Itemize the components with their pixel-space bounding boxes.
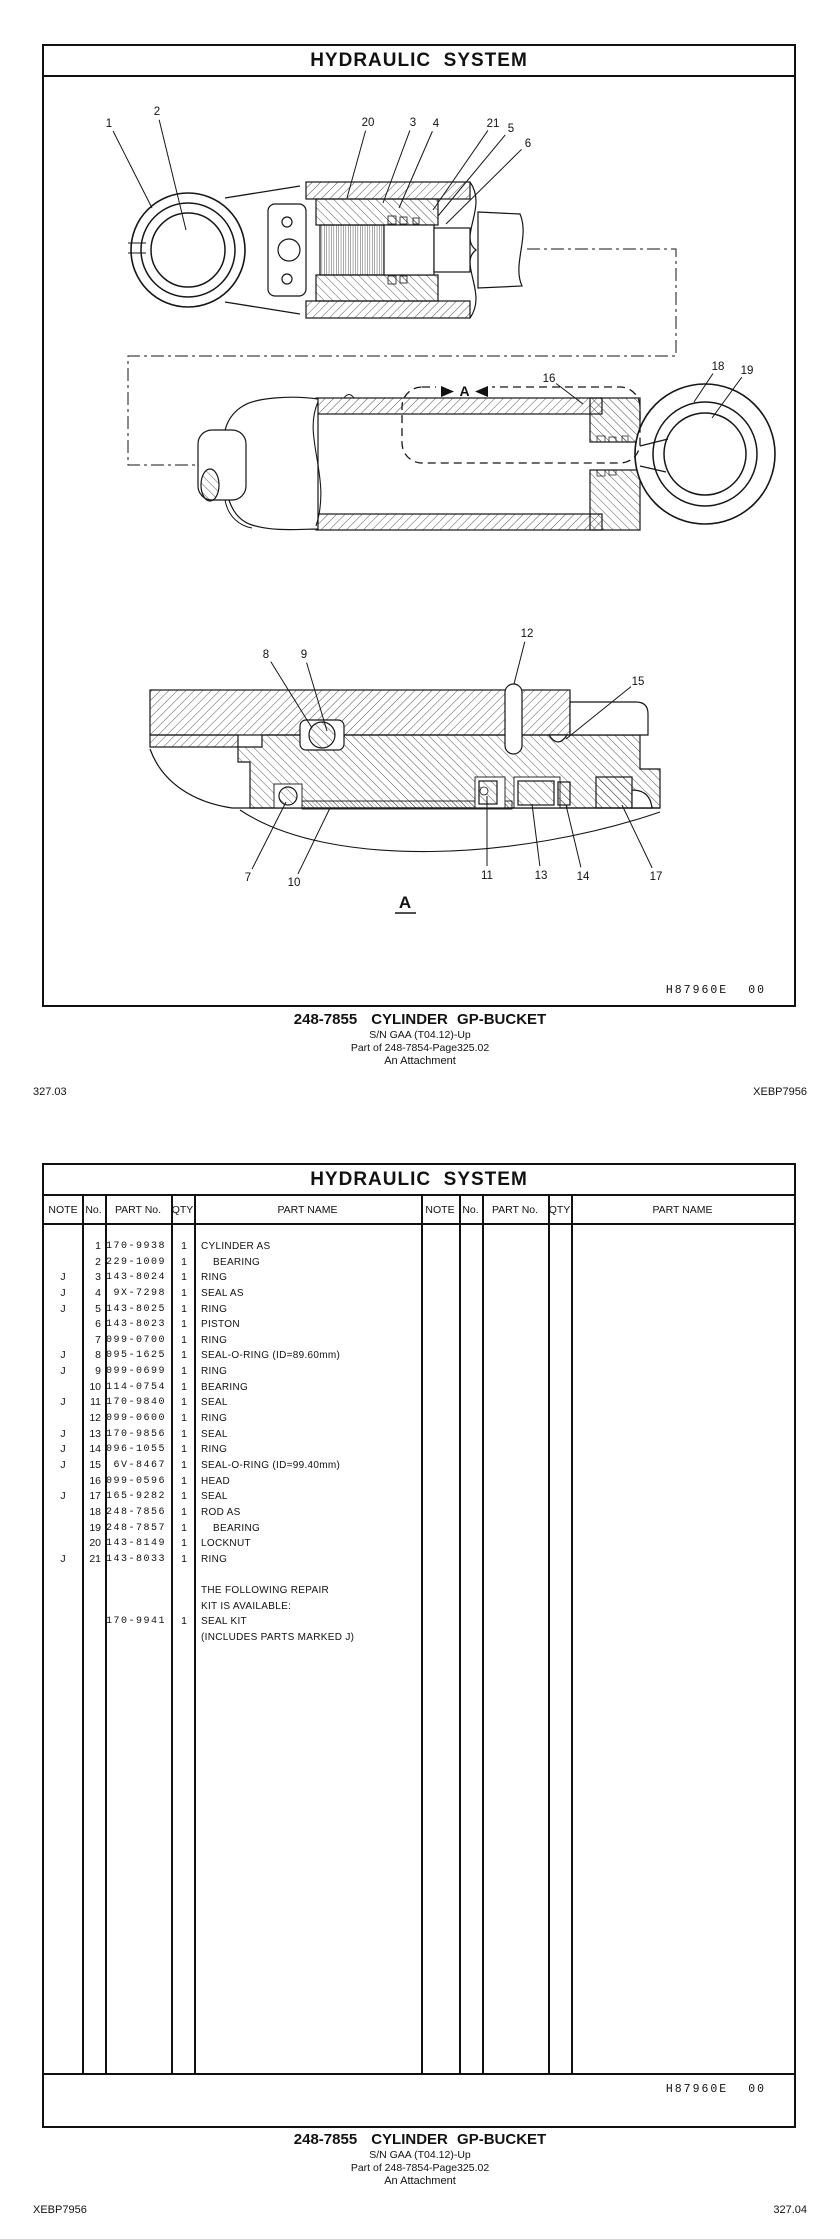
cell-qty: 1 — [171, 1614, 194, 1630]
cell-qty: 1 — [171, 1380, 194, 1396]
cell-part: 170-9840 — [105, 1395, 171, 1411]
cell-note: J — [44, 1442, 82, 1458]
plate-code: H87960E00 — [666, 2083, 766, 2096]
cell-part — [105, 1583, 171, 1599]
cell-no: 6 — [82, 1317, 105, 1333]
grid-line — [459, 1196, 461, 2073]
cell-note: J — [44, 1348, 82, 1364]
cell-note — [44, 1333, 82, 1349]
table-row: J49X-72981SEAL AS — [44, 1286, 421, 1302]
cell-note: J — [44, 1286, 82, 1302]
col-qty-header-2: QTY — [548, 1204, 571, 1216]
cell-name: RING — [194, 1442, 421, 1458]
cell-name: RING — [194, 1270, 421, 1286]
cell-part: 248-7857 — [105, 1521, 171, 1537]
callout-leader-17 — [622, 805, 652, 868]
callout-15: 15 — [632, 676, 645, 688]
plate-code: H87960E00 — [666, 984, 766, 997]
callout-18: 18 — [712, 361, 725, 373]
cell-note — [44, 1474, 82, 1490]
cell-part: 170-9856 — [105, 1427, 171, 1443]
table-bottom-rule — [44, 2073, 794, 2075]
cell-name: LOCKNUT — [194, 1536, 421, 1552]
cell-note: J — [44, 1458, 82, 1474]
callout-16: 16 — [543, 373, 556, 385]
col-partname-header-2: PART NAME — [571, 1204, 794, 1216]
cell-no: 16 — [82, 1474, 105, 1490]
cell-no — [82, 1583, 105, 1599]
cell-name: SEAL AS — [194, 1286, 421, 1302]
col-note-header-2: NOTE — [421, 1204, 459, 1216]
callout-6: 6 — [525, 138, 531, 150]
cell-part: 248-7856 — [105, 1505, 171, 1521]
cell-qty — [171, 1599, 194, 1615]
cell-name: SEAL KIT — [194, 1614, 421, 1630]
cell-note — [44, 1411, 82, 1427]
serial-range: S/N GAA (T04.12)-Up — [0, 1029, 840, 1042]
cell-no: 18 — [82, 1505, 105, 1521]
cell-part: 143-8033 — [105, 1552, 171, 1568]
callout-21: 21 — [487, 118, 500, 130]
manual-spread: { "page1": { "title": "HYDRAULIC SYSTEM"… — [0, 0, 840, 2239]
table-row: 6143-80231PISTON — [44, 1317, 421, 1333]
cell-name: SEAL — [194, 1489, 421, 1505]
cell-part: 143-8025 — [105, 1302, 171, 1318]
col-no-header: No. — [82, 1204, 105, 1216]
cell-name: RING — [194, 1411, 421, 1427]
cell-qty: 1 — [171, 1364, 194, 1380]
cell-note: J — [44, 1302, 82, 1318]
drawing-page: HYDRAULIC SYSTEM — [42, 44, 796, 1007]
assembly-part-number: 248-7855 — [294, 2131, 357, 2148]
table-row: J156V-84671SEAL-O-RING (ID=99.40mm) — [44, 1458, 421, 1474]
plate-revision: 00 — [748, 984, 766, 997]
cell-note — [44, 1380, 82, 1396]
assembly-title: 248-7855CYLINDER GP-BUCKET — [0, 2131, 840, 2149]
cell-no: 9 — [82, 1364, 105, 1380]
plate-code-number: H87960E — [666, 2083, 728, 2096]
cell-note: J — [44, 1552, 82, 1568]
parent-reference: Part of 248-7854-Page325.02 — [0, 2162, 840, 2175]
col-note-header: NOTE — [44, 1204, 82, 1216]
callout-leader-10 — [298, 808, 330, 874]
cell-no: 15 — [82, 1458, 105, 1474]
doc-code-right: XEBP7956 — [753, 1086, 807, 1098]
cell-note — [44, 1255, 82, 1271]
cell-no: 14 — [82, 1442, 105, 1458]
table-row: 12099-06001RING — [44, 1411, 421, 1427]
cell-part: 165-9282 — [105, 1489, 171, 1505]
table-row: J11170-98401SEAL — [44, 1395, 421, 1411]
cell-part: 6V-8467 — [105, 1458, 171, 1474]
parts-list-page: HYDRAULIC SYSTEM NOTE No. PART No. QTY P… — [42, 1163, 796, 2128]
detail-a-label: A — [399, 893, 411, 912]
plate-revision: 00 — [748, 2083, 766, 2096]
table-header: NOTE No. PART No. QTY PART NAME NOTE No.… — [44, 1196, 794, 1225]
cell-no: 20 — [82, 1536, 105, 1552]
cell-qty: 1 — [171, 1552, 194, 1568]
cell-name: SEAL — [194, 1427, 421, 1443]
attachment-note: An Attachment — [0, 1055, 840, 1068]
cylinder-cross-section-drawing: A A 122 — [44, 77, 794, 1007]
cell-no: 3 — [82, 1270, 105, 1286]
callout-13: 13 — [535, 870, 548, 882]
cell-part: 143-8024 — [105, 1270, 171, 1286]
col-qty-header: QTY — [171, 1204, 194, 1216]
cell-name: THE FOLLOWING REPAIR — [194, 1583, 421, 1599]
table-row: J14096-10551RING — [44, 1442, 421, 1458]
cell-qty: 1 — [171, 1302, 194, 1318]
cell-no: 10 — [82, 1380, 105, 1396]
table-row: 170-99411SEAL KIT — [44, 1614, 421, 1630]
cell-qty: 1 — [171, 1489, 194, 1505]
cell-part — [105, 1567, 171, 1583]
callout-7: 7 — [245, 872, 251, 884]
cell-qty — [171, 1567, 194, 1583]
grid-line — [482, 1196, 484, 2073]
page-title: HYDRAULIC SYSTEM — [44, 1165, 794, 1196]
drawing-caption: 248-7855CYLINDER GP-BUCKET S/N GAA (T04.… — [0, 1011, 840, 1068]
table-row: 19248-78571BEARING — [44, 1521, 421, 1537]
section-marker-label: A — [459, 383, 469, 399]
table-row: (INCLUDES PARTS MARKED J) — [44, 1630, 421, 1646]
callout-12: 12 — [521, 628, 534, 640]
cell-name: ROD AS — [194, 1505, 421, 1521]
table-row: 10114-07541BEARING — [44, 1380, 421, 1396]
cell-note: J — [44, 1270, 82, 1286]
cell-no: 2 — [82, 1255, 105, 1271]
cell-part: 9X-7298 — [105, 1286, 171, 1302]
table-row: J21143-80331RING — [44, 1552, 421, 1568]
cell-qty: 1 — [171, 1442, 194, 1458]
table-row: J17165-92821SEAL — [44, 1489, 421, 1505]
cell-qty: 1 — [171, 1270, 194, 1286]
page-number-right: 327.04 — [773, 2204, 807, 2216]
cell-no: 1 — [82, 1239, 105, 1255]
callout-leader-1 — [113, 131, 152, 208]
cell-qty: 1 — [171, 1333, 194, 1349]
callout-14: 14 — [577, 871, 590, 883]
cell-name: BEARING — [194, 1255, 421, 1271]
cell-part: 229-1009 — [105, 1255, 171, 1271]
cell-name: BEARING — [194, 1380, 421, 1396]
doc-code-left: XEBP7956 — [33, 2204, 87, 2216]
attachment-note: An Attachment — [0, 2175, 840, 2188]
parts-rows: 1170-99381CYLINDER AS2229-10091BEARINGJ3… — [44, 1239, 421, 1646]
cell-note: J — [44, 1364, 82, 1380]
cell-name: RING — [194, 1364, 421, 1380]
cell-qty: 1 — [171, 1255, 194, 1271]
cell-note: J — [44, 1395, 82, 1411]
cell-name: RING — [194, 1333, 421, 1349]
cell-note: J — [44, 1489, 82, 1505]
cell-part: 170-9941 — [105, 1614, 171, 1630]
cell-note — [44, 1521, 82, 1537]
cell-part: 099-0600 — [105, 1411, 171, 1427]
cell-no — [82, 1567, 105, 1583]
table-row: 1170-99381CYLINDER AS — [44, 1239, 421, 1255]
callout-11: 11 — [481, 870, 493, 882]
cell-part: 143-8149 — [105, 1536, 171, 1552]
cell-qty: 1 — [171, 1348, 194, 1364]
cell-no — [82, 1614, 105, 1630]
callout-leader-12 — [514, 642, 525, 684]
cell-no — [82, 1599, 105, 1615]
table-row: J8095-16251SEAL-O-RING (ID=89.60mm) — [44, 1348, 421, 1364]
cell-no: 8 — [82, 1348, 105, 1364]
cell-no: 19 — [82, 1521, 105, 1537]
table-row: 18248-78561ROD AS — [44, 1505, 421, 1521]
cell-no: 7 — [82, 1333, 105, 1349]
cell-part: 170-9938 — [105, 1239, 171, 1255]
cell-note: J — [44, 1427, 82, 1443]
cell-name: KIT IS AVAILABLE: — [194, 1599, 421, 1615]
callout-9: 9 — [301, 649, 307, 661]
cell-qty: 1 — [171, 1521, 194, 1537]
table-row: THE FOLLOWING REPAIR — [44, 1583, 421, 1599]
cell-name — [194, 1567, 421, 1583]
cell-no: 4 — [82, 1286, 105, 1302]
table-row: 2229-10091BEARING — [44, 1255, 421, 1271]
cell-qty: 1 — [171, 1536, 194, 1552]
cell-name: RING — [194, 1302, 421, 1318]
callout-20: 20 — [362, 117, 375, 129]
table-row: J5143-80251RING — [44, 1302, 421, 1318]
cell-note — [44, 1599, 82, 1615]
cell-no: 13 — [82, 1427, 105, 1443]
col-partno-header: PART No. — [105, 1204, 171, 1216]
cell-note — [44, 1583, 82, 1599]
cell-no: 12 — [82, 1411, 105, 1427]
cell-note — [44, 1630, 82, 1646]
col-partname-header: PART NAME — [194, 1204, 421, 1216]
assembly-name: CYLINDER GP-BUCKET — [371, 1011, 546, 1028]
parts-list-caption: 248-7855CYLINDER GP-BUCKET S/N GAA (T04.… — [0, 2131, 840, 2188]
assembly-name: CYLINDER GP-BUCKET — [371, 2131, 546, 2148]
grid-line — [421, 1196, 423, 2073]
table-row: J9099-06991RING — [44, 1364, 421, 1380]
callout-2: 2 — [154, 106, 160, 118]
col-partno-header-2: PART No. — [482, 1204, 548, 1216]
cell-part: 099-0596 — [105, 1474, 171, 1490]
col-no-header-2: No. — [459, 1204, 482, 1216]
cell-name: BEARING — [194, 1521, 421, 1537]
callout-leader-7 — [252, 802, 286, 869]
callout-17: 17 — [650, 871, 663, 883]
page-number-left: 327.03 — [33, 1086, 67, 1098]
callout-1: 1 — [106, 118, 112, 130]
cell-note — [44, 1239, 82, 1255]
table-row: 20143-81491LOCKNUT — [44, 1536, 421, 1552]
cell-qty: 1 — [171, 1505, 194, 1521]
cell-no: 21 — [82, 1552, 105, 1568]
table-row: J3143-80241RING — [44, 1270, 421, 1286]
callout-19: 19 — [741, 365, 754, 377]
cell-qty: 1 — [171, 1239, 194, 1255]
cell-qty: 1 — [171, 1458, 194, 1474]
grid-line — [548, 1196, 550, 2073]
cell-qty — [171, 1630, 194, 1646]
assembly-title: 248-7855CYLINDER GP-BUCKET — [0, 1011, 840, 1029]
cell-name: CYLINDER AS — [194, 1239, 421, 1255]
cell-name: (INCLUDES PARTS MARKED J) — [194, 1630, 421, 1646]
cell-name: PISTON — [194, 1317, 421, 1333]
head-end-view — [128, 182, 523, 318]
cell-note — [44, 1614, 82, 1630]
cell-qty: 1 — [171, 1286, 194, 1302]
cell-part — [105, 1599, 171, 1615]
cell-qty — [171, 1583, 194, 1599]
cell-name: SEAL-O-RING (ID=89.60mm) — [194, 1348, 421, 1364]
callout-8: 8 — [263, 649, 269, 661]
table-row: 16099-05961HEAD — [44, 1474, 421, 1490]
page-title: HYDRAULIC SYSTEM — [44, 46, 794, 77]
cell-part: 114-0754 — [105, 1380, 171, 1396]
cell-no: 5 — [82, 1302, 105, 1318]
cell-name: SEAL — [194, 1395, 421, 1411]
cell-note — [44, 1505, 82, 1521]
plate-code-number: H87960E — [666, 984, 728, 997]
cell-qty: 1 — [171, 1395, 194, 1411]
cell-qty: 1 — [171, 1411, 194, 1427]
cell-no: 17 — [82, 1489, 105, 1505]
cell-part: 099-0700 — [105, 1333, 171, 1349]
parent-reference: Part of 248-7854-Page325.02 — [0, 1042, 840, 1055]
cell-part: 099-0699 — [105, 1364, 171, 1380]
table-row — [44, 1567, 421, 1583]
cell-no — [82, 1630, 105, 1646]
cell-part — [105, 1630, 171, 1646]
grid-line — [571, 1196, 573, 2073]
table-row: KIT IS AVAILABLE: — [44, 1599, 421, 1615]
cell-note — [44, 1567, 82, 1583]
table-row: J13170-98561SEAL — [44, 1427, 421, 1443]
callout-10: 10 — [288, 877, 301, 889]
cell-part: 143-8023 — [105, 1317, 171, 1333]
serial-range: S/N GAA (T04.12)-Up — [0, 2149, 840, 2162]
callout-leader-13 — [532, 804, 540, 866]
cell-part: 095-1625 — [105, 1348, 171, 1364]
cell-name: SEAL-O-RING (ID=99.40mm) — [194, 1458, 421, 1474]
cell-qty: 1 — [171, 1317, 194, 1333]
cell-qty: 1 — [171, 1474, 194, 1490]
table-row: 7099-07001RING — [44, 1333, 421, 1349]
cell-name: RING — [194, 1552, 421, 1568]
callout-5: 5 — [508, 123, 514, 135]
cell-note — [44, 1536, 82, 1552]
callout-4: 4 — [433, 118, 440, 130]
cell-name: HEAD — [194, 1474, 421, 1490]
assembly-part-number: 248-7855 — [294, 1011, 357, 1028]
callout-3: 3 — [410, 117, 416, 129]
cell-no: 11 — [82, 1395, 105, 1411]
cell-part: 096-1055 — [105, 1442, 171, 1458]
cell-qty: 1 — [171, 1427, 194, 1443]
cell-note — [44, 1317, 82, 1333]
